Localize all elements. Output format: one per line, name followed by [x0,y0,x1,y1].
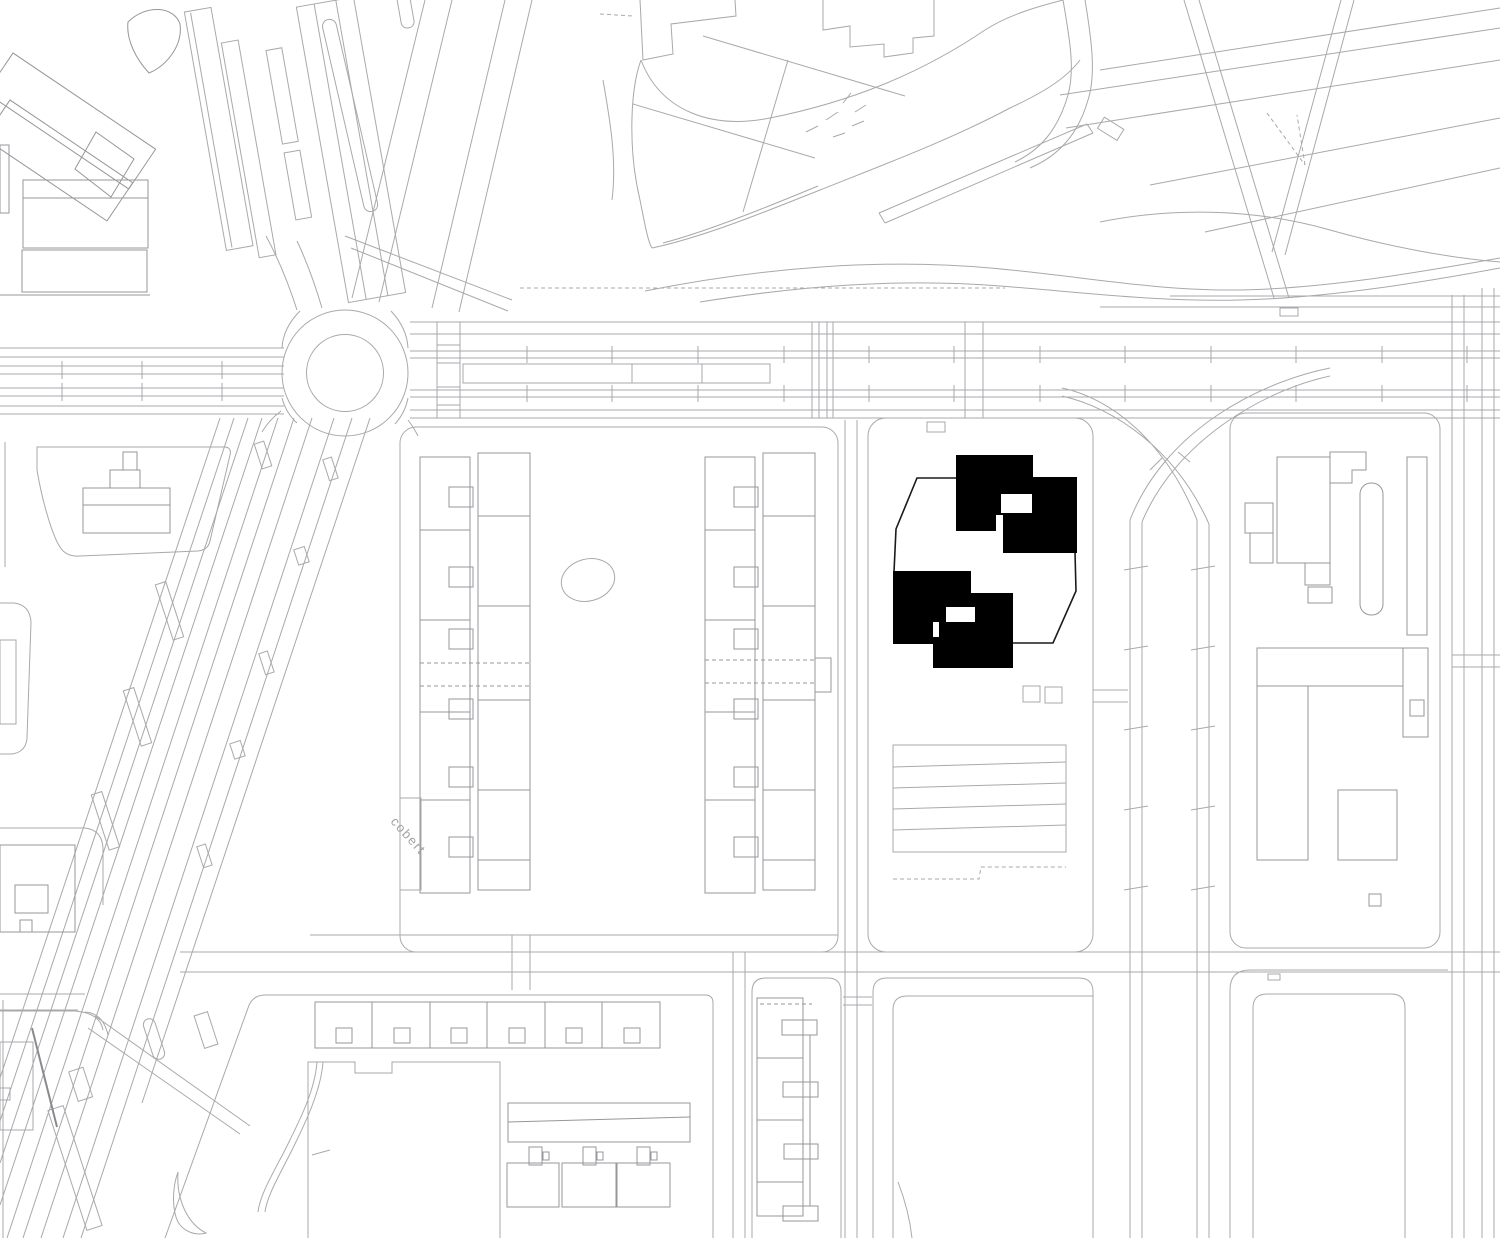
street-from-roundabout-north [345,0,532,312]
trapezoid-block [37,447,230,556]
southwest-building [0,845,75,932]
top-right-rail-lines [1060,0,1500,1238]
west-blocks [0,442,230,1238]
top-middle-terrain [520,0,1500,302]
east-block-buildings [1245,452,1428,906]
street-label-cobert: cobert [388,814,429,858]
tram-platform [463,364,770,383]
east-block-outline [1230,413,1440,948]
residential-slab-west [420,453,530,893]
roundabout-outer-circle [282,310,408,436]
park-block [165,995,713,1238]
project-tower-ne-b [1003,477,1077,553]
tram-junction-east [1062,368,1330,1238]
east-block-south-outline [1230,970,1448,1238]
cross-building [83,452,170,533]
park-outline [165,995,713,1238]
parking-rows [893,745,1066,852]
project-tower-sw-b [933,593,1013,668]
east-block [1230,413,1448,1238]
crosswalks [437,322,983,418]
pier-strip [879,124,1093,223]
rail-platform-strips [184,0,532,312]
middle-residential-block [400,427,838,952]
south-houses [507,1147,670,1207]
site-plan-svg: cobert [0,0,1500,1238]
block-outline [400,427,838,952]
bottom-middle-blocks [752,978,1093,1238]
project-building-highlight [893,455,1077,668]
top-left-buildings [0,9,180,295]
site-plan-map: cobert [0,0,1500,1238]
balcony-slab [757,998,818,1221]
leaf-shape [128,9,181,73]
l-building [308,1062,500,1238]
residential-slab-east [705,453,831,893]
garage-strip [508,1103,690,1142]
small-dashes [806,93,866,137]
pond [556,553,619,608]
main-road-band [0,322,1500,418]
roundabout-inner-circle [307,335,384,412]
track-ticks [1124,452,1215,890]
crescent-shape [174,1172,207,1234]
row-houses [315,1002,660,1048]
garden-path [258,1062,330,1212]
